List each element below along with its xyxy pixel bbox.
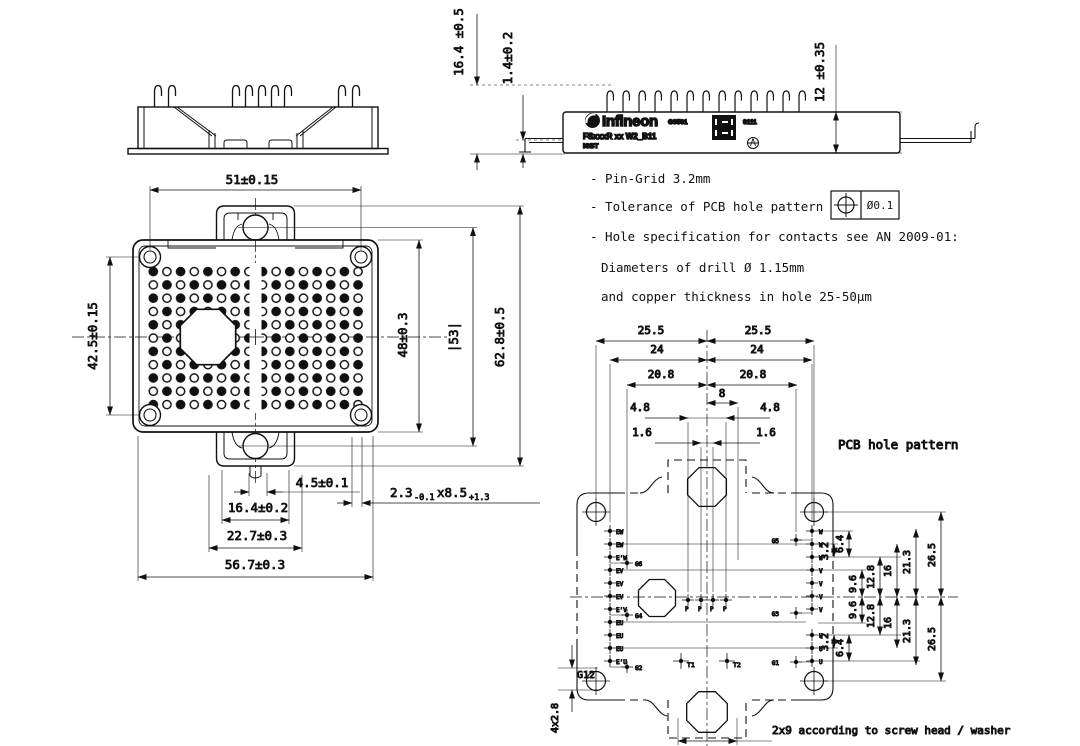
mid-octagon-hole	[639, 580, 676, 617]
dim-width-56-7: 56.7±0.3	[225, 557, 285, 572]
side-view-left	[128, 86, 388, 155]
chain-26-5-bot: 26.5	[927, 627, 938, 651]
chain-21-3-top: 21.3	[902, 550, 913, 574]
pin-label: V	[819, 594, 823, 601]
pcb-dim-25-5-left: 25.5	[638, 324, 665, 337]
pin-label: E'V	[616, 607, 627, 614]
pin-label: EU	[616, 633, 624, 640]
top-view	[72, 198, 450, 486]
pcb-dim-20-8-left: 20.8	[648, 368, 675, 381]
pin-label: EW	[616, 529, 624, 536]
pin-label: P	[698, 606, 702, 613]
pcb-dim-4-8-left: 4.8	[630, 401, 650, 414]
pin-label: P	[685, 606, 689, 613]
note-pin-grid: - Pin-Grid 3.2mm	[590, 171, 710, 186]
dim-height-12: 12 ±0.35	[812, 42, 827, 102]
gate-label: G4	[635, 613, 643, 620]
dim-height-48: 48±0.3	[395, 312, 410, 357]
octagon-hole	[180, 309, 235, 364]
slot-dim-main: 2.3	[390, 485, 413, 500]
pin-label: P	[710, 606, 714, 613]
pcb-dim-1-6-right: 1.6	[756, 426, 776, 439]
gate-label: G2	[635, 665, 643, 672]
dim-width-22-7: 22.7±0.3	[227, 528, 287, 543]
chain-16-top: 16	[883, 565, 894, 577]
pin-label: T1	[687, 661, 695, 669]
pcb-dim-1-6-left: 1.6	[632, 426, 652, 439]
dim-width-4-5: 4.5±0.1	[296, 475, 349, 490]
corner-dim-4x2-8: 4x2.8	[550, 703, 561, 733]
pin-label: U	[819, 646, 823, 653]
chain-26-5-top: 26.5	[927, 543, 938, 567]
dim-width-16-4: 16.4±0.2	[228, 500, 288, 515]
pin-label: EV	[616, 581, 624, 588]
pin-label: E'W	[616, 555, 627, 562]
dim-height-16-4-top: 16.4 ±0.5	[451, 8, 466, 76]
pcb-dim-4-8-right: 4.8	[760, 401, 780, 414]
brand-text: Infineon	[602, 113, 658, 130]
dim-height-53: |53|	[446, 322, 461, 352]
pin-label: W	[819, 542, 823, 549]
gate-label: G3	[772, 611, 780, 618]
dim-height-42-5: 42.5±0.15	[85, 302, 100, 370]
pin-label: V	[819, 607, 823, 614]
pin-label: V	[819, 568, 823, 575]
note-hole-spec: - Hole specification for contacts see AN…	[590, 229, 959, 244]
chain-6-4-bot: 6.4	[835, 639, 846, 657]
pcb-top-dims	[596, 341, 814, 443]
pcb-right-pins	[790, 525, 818, 668]
mechanical-drawing: 51±0.15 42.5±0.15 48±0.3 |53| 62.8±0.5 1…	[0, 0, 1080, 746]
series-text: IGBT	[583, 143, 599, 150]
pin-label: P	[723, 606, 727, 613]
chain-16-bot: 16	[883, 617, 894, 629]
note-copper: and copper thickness in hole 25-50µm	[601, 289, 872, 304]
pin-label: U	[819, 659, 823, 666]
pcb-dim-25-5-right: 25.5	[745, 324, 772, 337]
corner-label-g12: G12	[577, 670, 595, 681]
slot-dim-x: x8.5	[437, 485, 467, 500]
pin-label: E'U	[616, 659, 627, 666]
pcb-dim-8: 8	[719, 387, 726, 400]
pcb-hole-pattern-view: 25.5 25.5 24 24 20.8 20.8 8 4.8 4.8 1.6 …	[550, 324, 1011, 746]
chain-9-6-bot: 9.6	[848, 601, 859, 619]
gate-label: G6	[635, 561, 643, 568]
pcb-side-dims	[834, 512, 941, 681]
side-right-dimensions: 16.4 ±0.5 1.4±0.2 12 ±0.35	[451, 8, 902, 170]
chain-12-8-top: 12.8	[866, 565, 877, 589]
side-view-right: Infineon G0501 0111 FSxxxR xx W2_B11 IGB…	[519, 91, 979, 153]
dim-slot-2-3x8-5: 2.3 -0.1 x8.5 +1.3	[390, 485, 489, 503]
batch-text: 0111	[743, 119, 757, 126]
slot-dim-tol1: -0.1	[414, 493, 434, 503]
position-tolerance-icon	[834, 193, 858, 217]
slot-dim-tol2: +1.3	[469, 493, 489, 503]
pin-label: EU	[616, 646, 624, 653]
dim-height-1-4: 1.4±0.2	[500, 32, 515, 85]
top-mounting-tab	[217, 206, 295, 240]
datamatrix-icon	[712, 115, 736, 140]
side-right-pins	[607, 91, 805, 112]
chain-9-6-top: 9.6	[848, 575, 859, 593]
note-tolerance: - Tolerance of PCB hole pattern	[590, 199, 823, 214]
pin-label: EV	[616, 568, 624, 575]
drawing-sheet: 51±0.15 42.5±0.15 48±0.3 |53| 62.8±0.5 1…	[0, 0, 1080, 746]
chain-12-8-bot: 12.8	[866, 604, 877, 628]
pin-label: W	[819, 555, 823, 562]
module-label: Infineon G0501 0111 FSxxxR xx W2_B11 IGB…	[583, 113, 759, 150]
note-drill: Diameters of drill Ø 1.15mm	[601, 260, 804, 275]
dim-height-62-8: 62.8±0.5	[492, 307, 507, 367]
chain-21-3-bot: 21.3	[902, 619, 913, 643]
pin-label: W	[819, 529, 823, 536]
pin-label: V	[819, 581, 823, 588]
tolerance-frame: Ø0.1	[831, 191, 899, 219]
code-text: G0501	[668, 119, 688, 126]
gate-label: G5	[772, 538, 780, 545]
pin-label: T2	[733, 661, 741, 669]
pcb-dim-24-right: 24	[750, 343, 764, 356]
tolerance-value: Ø0.1	[867, 199, 894, 212]
pin-label: U	[819, 633, 823, 640]
pcb-dim-20-8-right: 20.8	[740, 368, 767, 381]
pcb-ext-lines-vert	[596, 345, 814, 592]
screw-note: 2x9 according to screw head / washer	[772, 724, 1011, 737]
pin-label: EV	[616, 594, 624, 601]
gate-label: G1	[772, 660, 780, 667]
pin-label: EW	[616, 542, 624, 549]
part-number: FSxxxR xx W2_B11	[583, 132, 657, 141]
side-left-pins	[155, 86, 360, 108]
pin-label: EU	[616, 620, 624, 627]
chain-6-4-top: 6.4	[835, 535, 846, 553]
dim-width-51: 51±0.15	[226, 172, 279, 187]
pcb-dim-24-left: 24	[650, 343, 664, 356]
pcb-title: PCB hole pattern	[838, 437, 958, 452]
notes-block: - Pin-Grid 3.2mm - Tolerance of PCB hole…	[590, 171, 959, 304]
